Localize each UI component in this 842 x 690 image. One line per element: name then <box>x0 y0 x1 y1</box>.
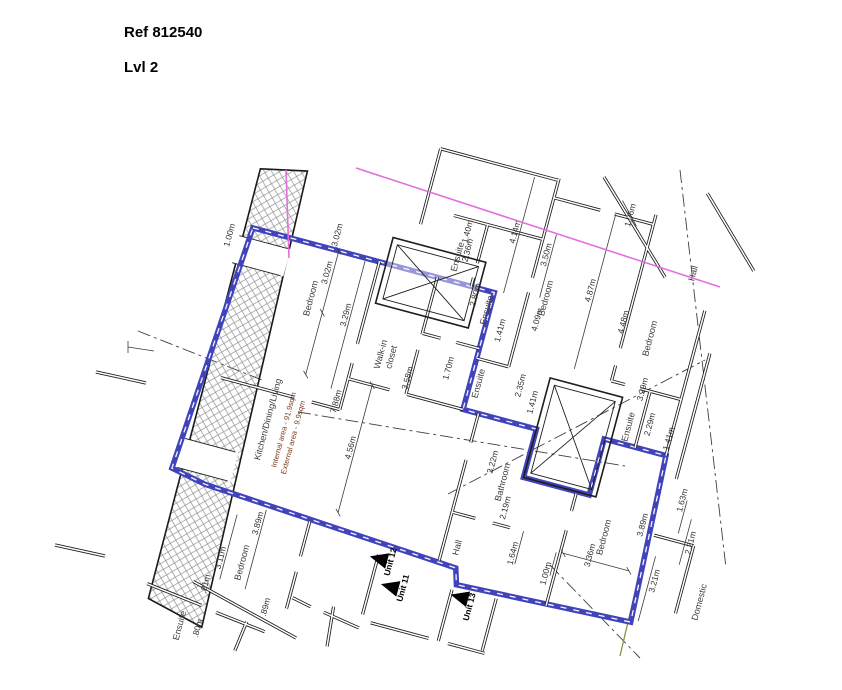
room-label: Ensuite <box>478 294 495 326</box>
floor-plan-svg: 1.00m 3.02m 3.02m Bedroom 3.29m Walk-in … <box>0 0 842 690</box>
exterior-wall-stubs <box>55 372 146 556</box>
plan-rotated-group: 1.00m 3.02m 3.02m Bedroom 3.29m Walk-in … <box>120 75 807 690</box>
unit-label: Unit 12 <box>382 547 399 577</box>
dimension-label: 3.02m <box>329 222 345 247</box>
dimension-label: 4.09m <box>529 307 545 332</box>
room-label: Ensuite <box>619 411 636 443</box>
room-label: Ensuite <box>171 610 188 642</box>
dimension-label: 3.22m <box>485 449 501 474</box>
dimension-label: 2.21m <box>682 530 698 555</box>
exterior-wall-stubs-face <box>55 372 146 556</box>
room-label: Bedroom <box>640 319 659 357</box>
room-label: Bedroom <box>594 518 613 556</box>
dimension-label: 1.41m <box>524 389 540 414</box>
room-label: Bedroom <box>301 279 320 317</box>
dimension-label: 1.63m <box>674 488 690 513</box>
room-label: Hall <box>450 539 464 557</box>
floor-plan-page: Ref 812540 Lvl 2 <box>0 0 842 690</box>
dimension-label: 3.58m <box>399 365 415 390</box>
dimension-label: 1.00m <box>221 222 237 247</box>
boundary-shaft-overlap <box>385 259 481 294</box>
unit-label: Unit 11 <box>394 573 411 603</box>
dimension-label: 3.02m <box>319 260 335 285</box>
dimension-label: .89m <box>258 597 273 618</box>
dimension-label: 2.35m <box>512 373 528 398</box>
room-label: Domestic <box>690 582 709 621</box>
dimension-label: 1.41m <box>661 426 677 451</box>
dimension-label: 1.41m <box>492 318 508 343</box>
grid-end-mark <box>128 341 154 353</box>
dimension-label: 3.21m <box>646 568 662 593</box>
dimension-label: 1.70m <box>440 356 456 381</box>
